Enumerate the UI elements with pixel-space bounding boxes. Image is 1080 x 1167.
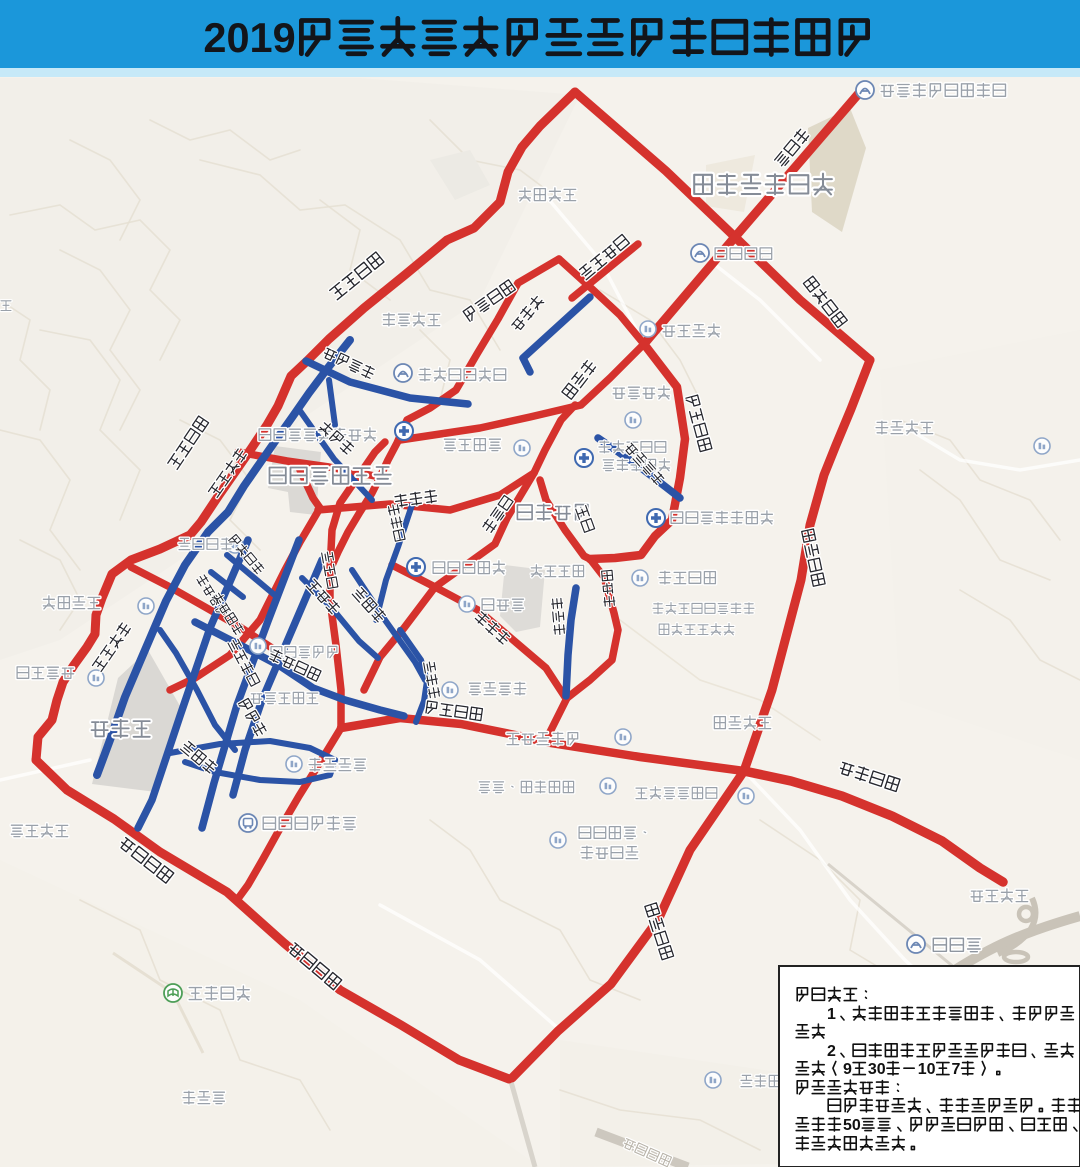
- svg-text:9: 9: [843, 1061, 852, 1078]
- svg-text:2: 2: [827, 1043, 836, 1060]
- svg-text:7: 7: [952, 1061, 961, 1078]
- svg-text:0: 0: [927, 1061, 936, 1078]
- svg-text:1: 1: [827, 1006, 836, 1023]
- svg-text:0: 0: [227, 14, 250, 61]
- svg-text:1: 1: [250, 14, 273, 61]
- svg-text:5: 5: [843, 1117, 852, 1134]
- svg-text:0: 0: [877, 1061, 886, 1078]
- svg-text:0: 0: [852, 1117, 861, 1134]
- svg-text:1: 1: [918, 1061, 927, 1078]
- svg-text:3: 3: [868, 1061, 877, 1078]
- svg-text:2: 2: [203, 14, 226, 61]
- svg-text:9: 9: [273, 14, 296, 61]
